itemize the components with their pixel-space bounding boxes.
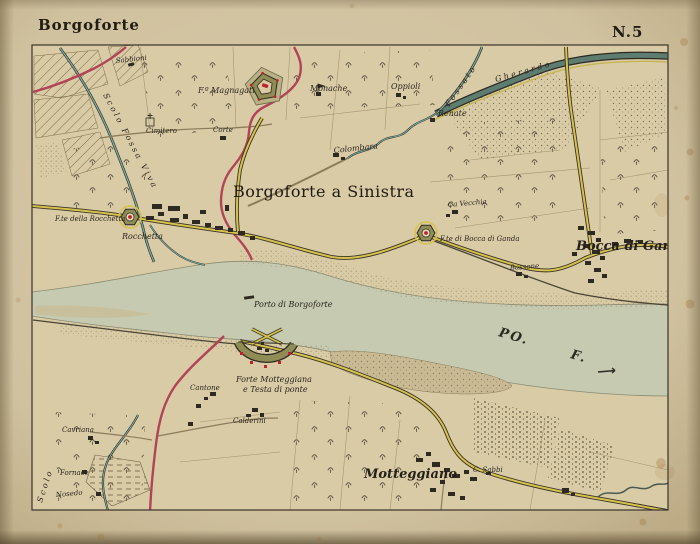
label-corte: Corte	[213, 126, 233, 134]
label-renate: Renate	[437, 109, 467, 118]
label-motteggiano: Motteggiano	[363, 467, 457, 482]
label-porto-di-borgoforte: Porto di Borgoforte	[253, 300, 333, 309]
label-cimitero: Cimitero	[146, 127, 177, 135]
label-cavriana: Cavriana	[62, 426, 94, 434]
sheet-title: Borgoforte	[38, 16, 140, 34]
label-cantone: Cantone	[190, 384, 220, 392]
label-monache: Monache	[309, 84, 348, 93]
sheet-number: N.5	[612, 23, 643, 41]
fort-bocca-di-ganda	[415, 222, 437, 244]
label-c-sabbi: C. Sabbi	[473, 466, 503, 474]
map-content: Borgoforte a Sinistra Bocca di Ganda Mot…	[32, 45, 689, 511]
label-fornace: Fornace	[59, 469, 89, 477]
label-calderini: Calderini	[233, 417, 266, 425]
label-borgoforte-a-sinistra: Borgoforte a Sinistra	[233, 182, 415, 201]
label-rocchetta: Rocchetta	[121, 232, 163, 241]
label-oppioli: Oppioli	[391, 82, 421, 91]
label-fort-rocchetta: F.te della Rocchetta	[54, 215, 125, 223]
label-forte-motteggiana-1: Forte Motteggiana	[235, 375, 312, 384]
label-fort-magnagati: F.º Magnagati	[197, 86, 255, 95]
label-forte-motteggiana-2: e Testa di ponte	[243, 385, 308, 394]
map-sheet: Borgoforte a Sinistra Bocca di Ganda Mot…	[0, 0, 700, 544]
map-canvas: Borgoforte a Sinistra Bocca di Ganda Mot…	[0, 0, 700, 544]
label-fort-bocca-di-ganda: F.te di Bocca di Ganda	[439, 235, 520, 243]
